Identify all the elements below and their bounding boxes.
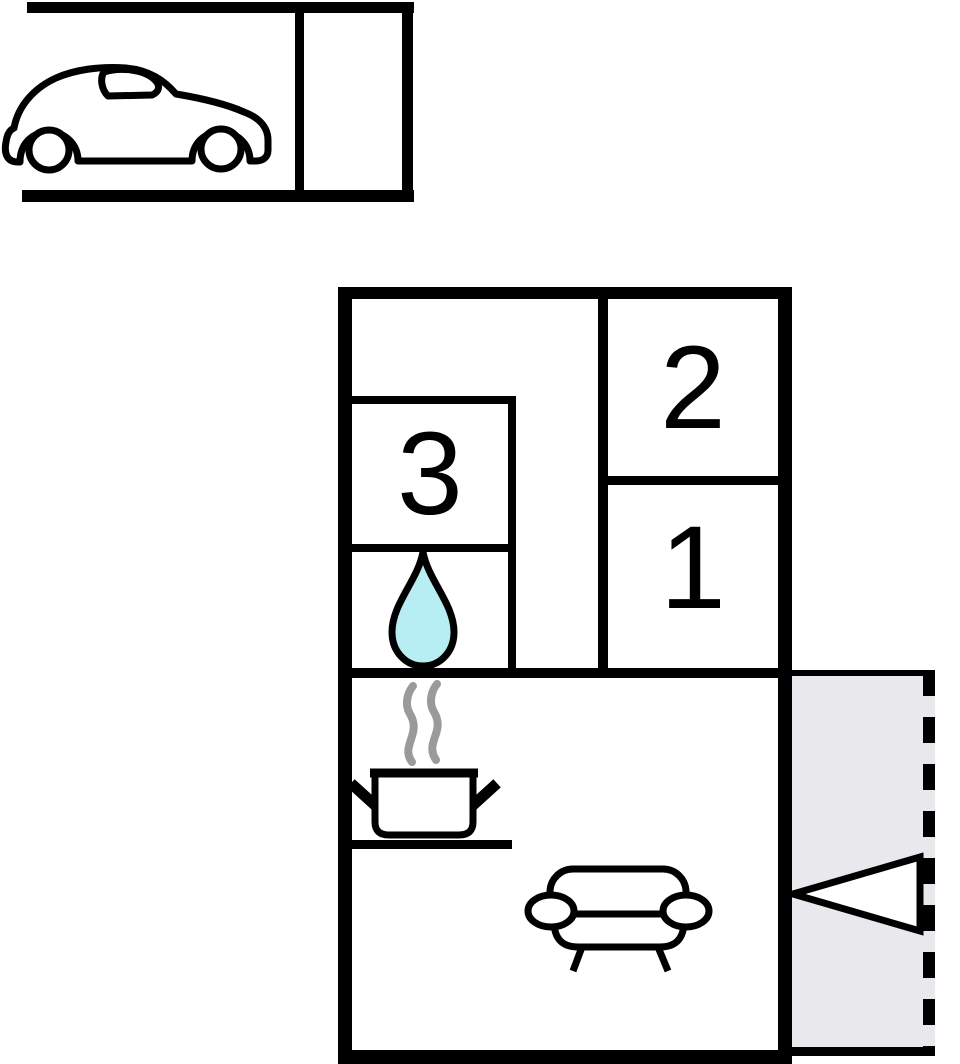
- room3-top-wall: [350, 396, 516, 404]
- water-drop-icon: [385, 548, 461, 670]
- car-icon: [4, 38, 286, 181]
- sofa-icon: [518, 863, 720, 978]
- plan-bottom-wall: [338, 1050, 792, 1064]
- plan-top-wall: [338, 287, 792, 299]
- entrance-arrow-icon: [788, 850, 930, 938]
- room-2-label: 2: [608, 300, 778, 476]
- room-1-label: 1: [608, 480, 778, 656]
- carport-top-wall: [27, 2, 414, 13]
- room-3-label: 3: [352, 404, 508, 544]
- carport-bottom-wall: [22, 190, 414, 202]
- cooking-pot-icon: [349, 764, 499, 844]
- carport-partition-wall: [295, 5, 304, 195]
- floor-plan: 2 1 3: [0, 0, 960, 1064]
- terrace-bottom-edge: [792, 1047, 935, 1056]
- plan-right-wall: [778, 287, 792, 1064]
- room3-right-wall: [508, 396, 516, 678]
- hall-divider-wall: [598, 296, 608, 678]
- carport-right-wall: [402, 5, 413, 195]
- terrace-top-edge: [792, 670, 935, 676]
- steam-icon: [398, 682, 458, 767]
